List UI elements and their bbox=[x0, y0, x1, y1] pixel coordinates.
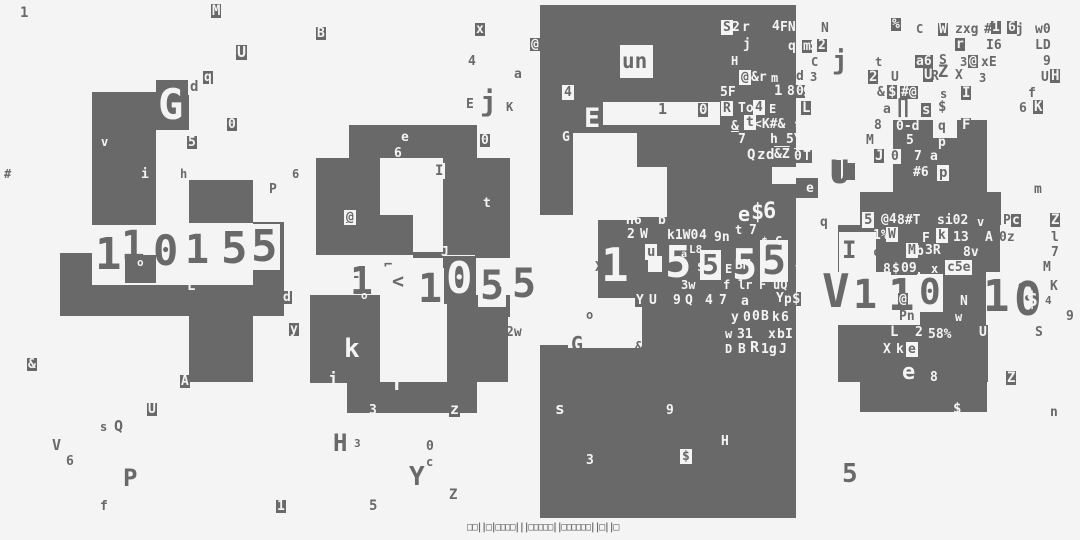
glyph: % bbox=[891, 18, 901, 31]
glyph: 0 bbox=[446, 257, 473, 301]
glyph: $ bbox=[791, 292, 801, 306]
glyph: 4 bbox=[754, 101, 764, 114]
glyph: L bbox=[801, 101, 811, 115]
gray-block bbox=[380, 215, 413, 255]
gray-block bbox=[413, 252, 443, 258]
glyph: A bbox=[180, 375, 190, 388]
glyph: 3w bbox=[681, 279, 695, 291]
glyph: T bbox=[802, 150, 812, 163]
glyph: r bbox=[741, 21, 751, 34]
glyph: 9 bbox=[1043, 55, 1051, 68]
glyph: 5YU bbox=[786, 133, 809, 146]
glyph: 6 bbox=[394, 147, 402, 160]
glyph: l bbox=[795, 265, 803, 278]
glyph: f bbox=[100, 500, 108, 513]
glyph: o bbox=[137, 257, 144, 268]
glyph: 9n bbox=[713, 231, 731, 244]
glyph: m bbox=[1034, 183, 1042, 196]
gray-block bbox=[189, 316, 253, 382]
glyph: 2 bbox=[914, 326, 924, 339]
gray-block bbox=[477, 317, 508, 382]
glyph: 2 bbox=[817, 39, 827, 52]
glyph: uQ bbox=[773, 279, 787, 291]
glyph: x bbox=[475, 23, 485, 36]
glyph: j bbox=[480, 88, 497, 116]
glyph: 9 bbox=[803, 86, 811, 99]
glyph: & bbox=[27, 358, 37, 371]
glyph: 1 bbox=[658, 102, 667, 117]
glyph: M bbox=[211, 4, 221, 18]
glyph: 4 bbox=[699, 229, 707, 242]
glyph: c bbox=[873, 246, 880, 258]
glyph: $ bbox=[887, 85, 897, 99]
glyph: B bbox=[738, 343, 746, 356]
glyph: 7 bbox=[914, 150, 922, 163]
glyph: j bbox=[743, 38, 751, 51]
glyph: f bbox=[723, 279, 730, 291]
gray-block bbox=[443, 158, 510, 255]
glyph: zxg bbox=[955, 23, 978, 36]
glyph: j bbox=[1016, 23, 1024, 36]
glyph: J bbox=[874, 149, 884, 163]
glyph: @4 bbox=[880, 213, 898, 226]
glyph: C bbox=[775, 235, 782, 247]
glyph: G bbox=[562, 131, 570, 144]
glyph: B bbox=[760, 310, 770, 323]
glyph: b bbox=[916, 245, 924, 258]
glyph: 4 bbox=[468, 55, 476, 68]
glyph: 5 bbox=[863, 213, 873, 227]
glyph: a bbox=[514, 68, 522, 81]
glyph: S bbox=[722, 21, 732, 34]
glyph: e bbox=[401, 131, 409, 144]
glyph: V bbox=[52, 438, 61, 453]
glyph: y bbox=[289, 323, 299, 336]
glyph: X bbox=[955, 69, 963, 82]
glyph: 8 bbox=[930, 371, 938, 384]
glyph: 3 bbox=[810, 71, 817, 83]
glyph: Z bbox=[449, 488, 457, 502]
glyph: p bbox=[938, 166, 948, 180]
glyph: N bbox=[960, 295, 968, 308]
glyph: U bbox=[147, 403, 157, 416]
glyph: $ bbox=[761, 236, 768, 248]
glyph: < bbox=[392, 271, 404, 291]
glyph: 13 bbox=[953, 231, 969, 244]
glyph: $ bbox=[938, 100, 946, 114]
glyph: h bbox=[180, 168, 187, 180]
glyph: 6 bbox=[1019, 102, 1027, 115]
glyph: r bbox=[392, 373, 405, 395]
glyph: 5 bbox=[842, 461, 858, 487]
gray-block bbox=[60, 253, 92, 316]
glyph: w0 bbox=[1035, 23, 1051, 36]
glyph: 1 bbox=[853, 275, 877, 315]
glyph: Z bbox=[1050, 213, 1060, 227]
glyph: I bbox=[785, 328, 793, 341]
glyph: &r bbox=[751, 71, 767, 84]
glyph: 5 bbox=[250, 225, 279, 269]
glyph: 0z bbox=[999, 231, 1015, 244]
glyph: H bbox=[333, 431, 347, 455]
glyph: G bbox=[158, 84, 183, 126]
glyph: U bbox=[830, 156, 849, 188]
glyph: 1 bbox=[276, 500, 286, 513]
glyph: j bbox=[328, 371, 338, 387]
glyph: Y bbox=[776, 292, 784, 305]
gray-block bbox=[189, 180, 253, 223]
glyph: &Z bbox=[774, 148, 790, 161]
glyph: W bbox=[887, 228, 897, 241]
glyph: 3 bbox=[960, 56, 967, 68]
glyph: 3 bbox=[586, 454, 594, 467]
glyph: 0 bbox=[918, 275, 942, 311]
glyph: U bbox=[648, 294, 658, 307]
glyph: t bbox=[875, 56, 882, 68]
glyph: 1 bbox=[20, 6, 28, 20]
glyph: 3 bbox=[354, 438, 361, 449]
glyph: k bbox=[895, 343, 905, 356]
glyph: <K#& bbox=[754, 118, 785, 131]
glyph: b bbox=[658, 214, 666, 227]
glyph: H bbox=[1050, 69, 1060, 83]
glyph: I6 bbox=[986, 39, 1002, 52]
glyph: A bbox=[985, 231, 993, 244]
glyph: M bbox=[866, 134, 874, 147]
glyph: 9 bbox=[673, 294, 681, 307]
glyph: W bbox=[640, 228, 648, 241]
glyph: k bbox=[937, 229, 947, 242]
glyph: j bbox=[832, 48, 848, 74]
glyph: R bbox=[722, 102, 732, 115]
glyph: Q bbox=[685, 294, 693, 307]
glyph: C bbox=[916, 23, 923, 35]
glyph: 8 bbox=[874, 119, 882, 132]
gray-block bbox=[92, 180, 156, 225]
glyph: Z bbox=[1006, 371, 1016, 385]
glyph: P bbox=[269, 183, 277, 196]
glyph: M bbox=[1043, 261, 1051, 274]
glyph: Q bbox=[746, 148, 756, 162]
glyph: & bbox=[635, 341, 643, 354]
glyph: q bbox=[203, 71, 213, 84]
glyph: 7 bbox=[719, 294, 727, 307]
glyph: @ bbox=[968, 55, 978, 68]
barcode: □□||□|□□□□|||□□□□□||□□□□□□||□||□ bbox=[467, 523, 618, 533]
glyph: 1 bbox=[601, 242, 629, 288]
glyph: R bbox=[749, 340, 760, 355]
glyph: D bbox=[725, 343, 732, 355]
glyph: w bbox=[725, 328, 732, 340]
glyph: I bbox=[961, 86, 971, 100]
glyph: 6 bbox=[292, 168, 299, 180]
glyph: 7 bbox=[738, 133, 746, 146]
glyph: F bbox=[759, 279, 766, 291]
glyph: 8 bbox=[499, 278, 506, 289]
glyph: si02 bbox=[936, 214, 969, 227]
glyph: 1 bbox=[991, 21, 1001, 34]
glyph: d bbox=[282, 291, 292, 304]
glyph: s bbox=[100, 421, 107, 433]
light-block bbox=[588, 135, 604, 141]
glyph: 2 bbox=[732, 21, 740, 34]
gray-block bbox=[447, 317, 477, 382]
glyph: I bbox=[434, 164, 444, 178]
glyph: Q bbox=[114, 419, 123, 434]
glyph: 4 bbox=[705, 294, 713, 307]
glyph: #@ bbox=[900, 86, 918, 99]
glyph: @ bbox=[530, 38, 540, 51]
glyph: 5 bbox=[221, 227, 248, 271]
glyph: 58% bbox=[928, 328, 951, 341]
glyph: 1 bbox=[983, 275, 1010, 319]
glyph: v bbox=[101, 136, 108, 148]
glyph: e bbox=[738, 204, 750, 224]
glyph: 2 bbox=[868, 70, 878, 84]
glyph: q bbox=[820, 216, 828, 229]
glyph: C bbox=[811, 56, 818, 68]
glyph: # bbox=[4, 168, 11, 180]
glyph: t bbox=[735, 224, 742, 236]
light-block bbox=[772, 167, 797, 184]
glyph: 5 bbox=[701, 251, 720, 279]
glyph: q bbox=[788, 40, 796, 53]
glyph: E bbox=[584, 105, 600, 132]
glyph: i bbox=[140, 168, 150, 181]
glyph: 0 bbox=[426, 440, 434, 453]
glyph: 8 bbox=[787, 85, 795, 98]
glyph: E bbox=[769, 103, 776, 115]
glyph: y bbox=[731, 311, 739, 324]
glyph: e bbox=[907, 343, 917, 356]
glyph: 0 bbox=[743, 311, 751, 324]
glyph: u bbox=[646, 245, 656, 259]
glyph: 1 bbox=[95, 233, 122, 277]
glyph: @ bbox=[740, 71, 750, 84]
gray-block bbox=[316, 158, 380, 255]
glyph: r bbox=[955, 38, 965, 51]
glyph: 0 bbox=[480, 134, 490, 147]
gray-block bbox=[349, 125, 477, 158]
glyph: s bbox=[921, 103, 931, 117]
glyph: K bbox=[506, 101, 513, 113]
glyph: F bbox=[961, 118, 971, 132]
gray-block bbox=[860, 382, 987, 412]
glyph: @ bbox=[898, 293, 908, 306]
glyph: 4 bbox=[1045, 295, 1052, 306]
glyph: #6 bbox=[913, 166, 929, 179]
glyph: Pn bbox=[899, 310, 915, 323]
glyph: a bbox=[883, 103, 891, 116]
glyph: lr bbox=[738, 279, 752, 291]
glyph: un bbox=[622, 51, 647, 72]
glyph: 3R bbox=[924, 244, 942, 257]
glyph: E bbox=[466, 98, 474, 111]
glyph: Y bbox=[409, 464, 425, 490]
glyph: 0-d bbox=[896, 120, 919, 133]
glyph: Z bbox=[938, 64, 948, 81]
glyph: c5e bbox=[946, 261, 971, 274]
glyph: o bbox=[361, 290, 368, 301]
glyph: 0 bbox=[890, 150, 900, 163]
glyph: 5 bbox=[906, 134, 914, 147]
glitch-canvas: 1MBUqdG05v#ih6P110155oLdy-&AUsQV6Pf1H3e6… bbox=[0, 0, 1080, 540]
glyph: q bbox=[938, 120, 946, 133]
glyph: 5 bbox=[511, 264, 537, 304]
light-block bbox=[637, 167, 667, 217]
glyph: n bbox=[1050, 406, 1058, 419]
glyph: $ bbox=[953, 402, 961, 416]
glyph: 9 bbox=[1066, 310, 1074, 323]
glyph: 6 bbox=[66, 455, 74, 468]
glyph: g- bbox=[1018, 280, 1031, 291]
glyph: H6 bbox=[626, 214, 642, 227]
glyph: 4 bbox=[563, 86, 573, 99]
glyph: $ bbox=[811, 101, 819, 115]
glyph: 7 bbox=[749, 224, 757, 237]
glyph: 6 bbox=[780, 311, 790, 324]
glyph: e bbox=[902, 362, 915, 384]
glyph: P bbox=[1003, 214, 1011, 227]
glyph: 5 bbox=[187, 136, 197, 149]
glyph: p bbox=[938, 136, 946, 149]
glyph: 3 bbox=[979, 72, 986, 84]
glyph: X bbox=[882, 343, 892, 356]
glyph: 0 bbox=[698, 103, 708, 117]
glyph: 6 bbox=[763, 201, 776, 223]
glyph: To bbox=[738, 102, 754, 115]
glyph: z bbox=[449, 402, 460, 417]
glyph: e bbox=[806, 182, 814, 195]
glyph: s bbox=[555, 401, 565, 417]
glyph: LD bbox=[1035, 39, 1051, 52]
glyph: $ bbox=[681, 450, 691, 463]
glyph: 1 bbox=[417, 269, 443, 309]
glyph: U bbox=[1041, 71, 1049, 84]
glyph: @ bbox=[345, 211, 355, 224]
glyph: Y bbox=[635, 294, 645, 307]
glyph: o bbox=[586, 309, 593, 321]
glyph: 0 bbox=[227, 118, 237, 131]
glyph: B bbox=[316, 27, 326, 40]
glyph: 1g bbox=[761, 343, 777, 356]
glyph: W bbox=[938, 23, 948, 36]
glyph: a bbox=[740, 295, 750, 308]
glyph: c bbox=[426, 456, 433, 468]
glyph: H bbox=[721, 435, 729, 448]
glyph: & bbox=[877, 86, 885, 99]
glyph: d bbox=[796, 70, 804, 83]
glyph: w bbox=[955, 311, 962, 323]
glyph: s bbox=[940, 88, 947, 100]
glyph: 2w bbox=[506, 326, 522, 339]
gray-block bbox=[475, 252, 510, 258]
glyph: h bbox=[770, 133, 778, 146]
glyph: c bbox=[1011, 214, 1021, 227]
glyph: U bbox=[978, 326, 988, 339]
glyph: 1 bbox=[185, 230, 209, 270]
glyph: t bbox=[483, 197, 491, 210]
glyph: U bbox=[891, 71, 899, 84]
glyph: FN bbox=[780, 21, 796, 34]
glyph: 0 bbox=[153, 230, 178, 272]
glyph: 1 bbox=[773, 84, 783, 98]
glyph: P bbox=[123, 466, 137, 490]
glyph: 9 bbox=[666, 404, 674, 417]
glyph: L bbox=[889, 325, 899, 339]
glyph: $ bbox=[1026, 289, 1038, 309]
glyph: J bbox=[778, 343, 788, 356]
glyph: I bbox=[842, 238, 856, 262]
glyph: N bbox=[821, 22, 829, 35]
glyph: 5F bbox=[720, 86, 736, 99]
glyph: a bbox=[929, 150, 939, 163]
glyph: G bbox=[571, 334, 583, 354]
glyph: U bbox=[236, 45, 247, 60]
glyph: d bbox=[189, 80, 199, 94]
glyph: V bbox=[822, 268, 850, 314]
glyph: S bbox=[1035, 326, 1043, 339]
glyph: K bbox=[1033, 100, 1043, 114]
light-block bbox=[573, 133, 637, 220]
glyph: l bbox=[1051, 231, 1059, 244]
glyph: 3 bbox=[369, 404, 377, 417]
glyph: 8#T bbox=[897, 214, 920, 227]
glyph: 8v bbox=[963, 246, 979, 259]
glyph: 5 bbox=[369, 499, 377, 513]
glyph: a bbox=[681, 250, 687, 260]
glyph: H bbox=[731, 55, 738, 67]
glyph: L bbox=[187, 279, 195, 293]
glyph: k bbox=[344, 336, 360, 362]
glyph: xE bbox=[981, 56, 997, 69]
glyph: K bbox=[1050, 280, 1058, 293]
glyph: v bbox=[977, 216, 984, 228]
glyph: 7 bbox=[1051, 246, 1059, 259]
